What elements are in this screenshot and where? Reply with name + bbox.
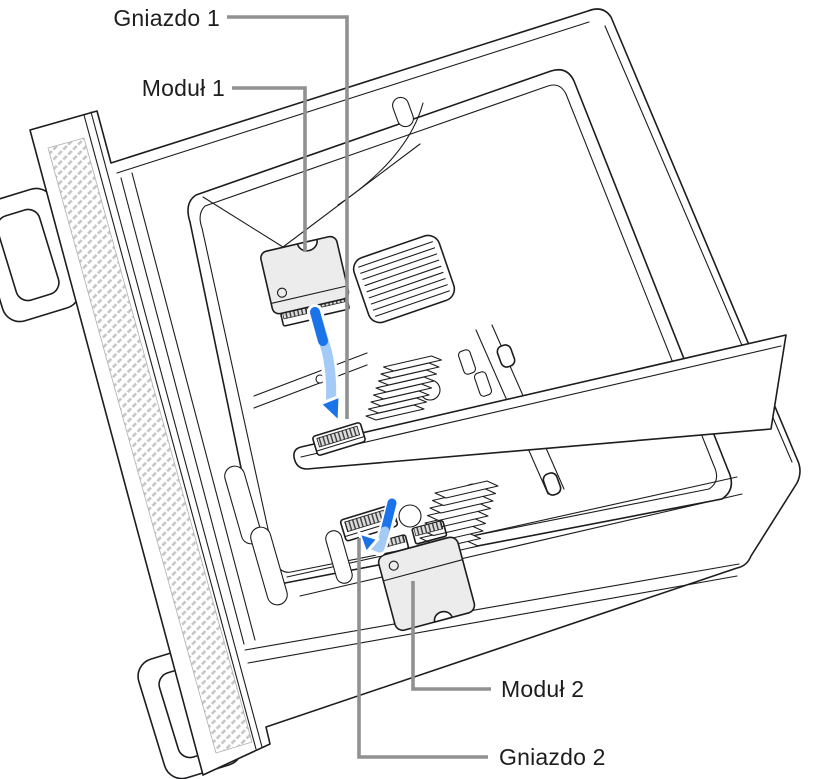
label-slot2: Gniazdo 2 <box>499 744 606 770</box>
label-module1: Moduł 1 <box>142 75 225 101</box>
illustration-canvas: Gniazdo 1 Moduł 1 Moduł 2 Gniazdo 2 <box>0 0 814 779</box>
label-module2: Moduł 2 <box>501 676 584 702</box>
label-slot1: Gniazdo 1 <box>113 5 220 31</box>
mac-pro-ssd-diagram: Gniazdo 1 Moduł 1 Moduł 2 Gniazdo 2 <box>0 0 814 779</box>
